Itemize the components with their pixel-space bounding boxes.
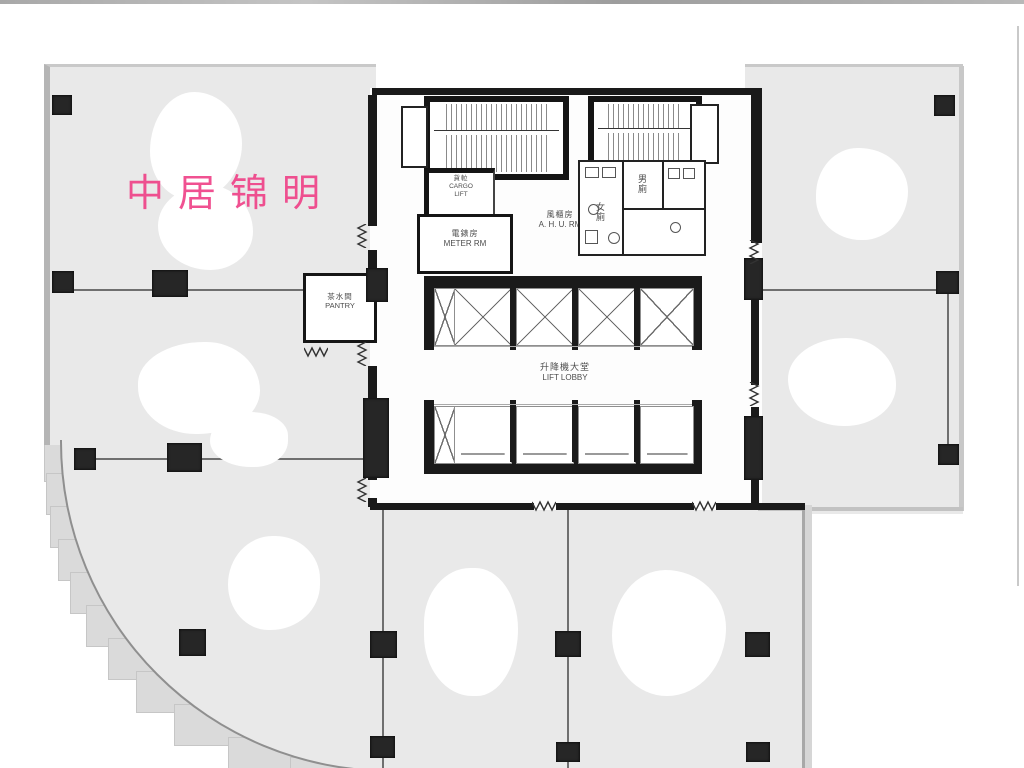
column: [556, 742, 580, 762]
whiteout-blob: [210, 412, 288, 467]
grid-line: [755, 289, 940, 291]
lift-lobby-label: 升降機大堂 LIFT LOBBY: [505, 362, 625, 383]
lift-lobby-label-en: LIFT LOBBY: [505, 373, 625, 383]
page-right-edge: [1017, 26, 1019, 586]
column: [52, 271, 74, 293]
stair-landing-rail: [434, 130, 559, 135]
column: [370, 736, 395, 758]
toilet-fixture: [585, 167, 599, 178]
lift-car: [516, 288, 574, 346]
lift-bank-upper-left-wall: [424, 276, 434, 350]
column: [934, 95, 955, 116]
stair-vestibule: [690, 104, 719, 164]
column: [746, 742, 770, 762]
whiteout-blob: [228, 536, 320, 630]
core-bottom-wall: [556, 503, 694, 510]
toilet-male-label: 男廁: [636, 174, 649, 194]
toilet-fixture: [585, 230, 598, 244]
pantry-label-en: PANTRY: [306, 301, 374, 310]
door-break-icon: [356, 342, 368, 366]
lift-bank-lower-left-wall: [424, 400, 434, 474]
cargo-lift-label-en1: CARGO: [429, 183, 493, 191]
core-right-wall: [751, 95, 762, 243]
lift-car: [578, 406, 636, 464]
lift-lobby-label-zh: 升降機大堂: [505, 362, 625, 373]
door-break-icon: [692, 500, 716, 512]
service-shaft: [434, 406, 456, 464]
toilet-block: 女廁 男廁: [578, 160, 706, 256]
door-break-icon: [356, 224, 368, 248]
right-wing-right-shadow: [959, 66, 964, 511]
pantry-label-zh: 茶水間: [306, 292, 374, 301]
core-column: [744, 258, 763, 300]
lift-bank-lower-door-line: [434, 404, 692, 405]
lift-car: [454, 406, 512, 464]
toilet-fixture: [670, 222, 681, 233]
page-top-edge: [0, 0, 1024, 4]
meter-room-label-zh: 電錶房: [420, 229, 510, 239]
stair-treads: [608, 104, 682, 167]
toilet-fixture: [602, 167, 616, 178]
lift-car: [578, 288, 636, 346]
cargo-lift-label-en2: LIFT: [429, 191, 493, 199]
door-break-icon: [748, 240, 760, 264]
meter-room-label-en: METER RM: [420, 239, 510, 249]
stair-treads: [446, 104, 547, 172]
toilet-fixture: [668, 168, 680, 179]
core-column: [744, 416, 763, 480]
door-break-icon: [532, 500, 556, 512]
toilet-fixture: [608, 232, 620, 244]
grid-line: [947, 291, 949, 447]
floor-plan-scan: 貨𨋢 CARGO LIFT 電錶房 METER RM 風櫃房 A. H. U. …: [0, 0, 1024, 768]
stair-vestibule: [401, 106, 428, 168]
lift-car: [640, 406, 694, 464]
column: [74, 448, 96, 470]
toilet-partition: [624, 208, 704, 210]
core-left-wall: [368, 95, 377, 226]
stair-landing-rail: [598, 128, 692, 133]
whiteout-blob: [788, 338, 896, 426]
door-break-icon: [356, 478, 368, 502]
door-break-icon: [304, 346, 328, 358]
column: [936, 271, 959, 294]
toilet-partition: [662, 162, 664, 208]
column: [179, 629, 206, 656]
lift-car: [454, 288, 512, 346]
meter-room: 電錶房 METER RM: [417, 214, 513, 274]
bottom-wing-right-shadow: [805, 505, 812, 768]
lift-bank-upper-door-line: [434, 346, 692, 347]
column: [52, 95, 72, 115]
column: [370, 631, 397, 658]
watermark-text: 中居锦明: [126, 162, 334, 217]
column: [938, 444, 959, 465]
column: [745, 632, 770, 657]
core-column: [363, 398, 389, 478]
toilet-female-label: 女廁: [594, 202, 607, 222]
lift-bank-upper-top-wall: [430, 276, 700, 288]
whiteout-blob: [816, 148, 908, 240]
core-column: [366, 268, 388, 302]
lift-car: [640, 288, 694, 346]
core-top-wall: [372, 88, 762, 95]
door-break-icon: [748, 382, 760, 406]
core-bottom-wall: [370, 503, 534, 510]
column: [555, 631, 581, 657]
core-bottom-wall: [716, 503, 805, 510]
service-shaft: [434, 288, 456, 346]
toilet-fixture: [683, 168, 695, 179]
cargo-lift-label-zh: 貨𨋢: [429, 175, 493, 183]
whiteout-blob: [424, 568, 518, 696]
lift-car: [516, 406, 574, 464]
column: [152, 270, 188, 297]
curved-floor-quadrant: [60, 440, 392, 768]
column: [167, 443, 202, 472]
